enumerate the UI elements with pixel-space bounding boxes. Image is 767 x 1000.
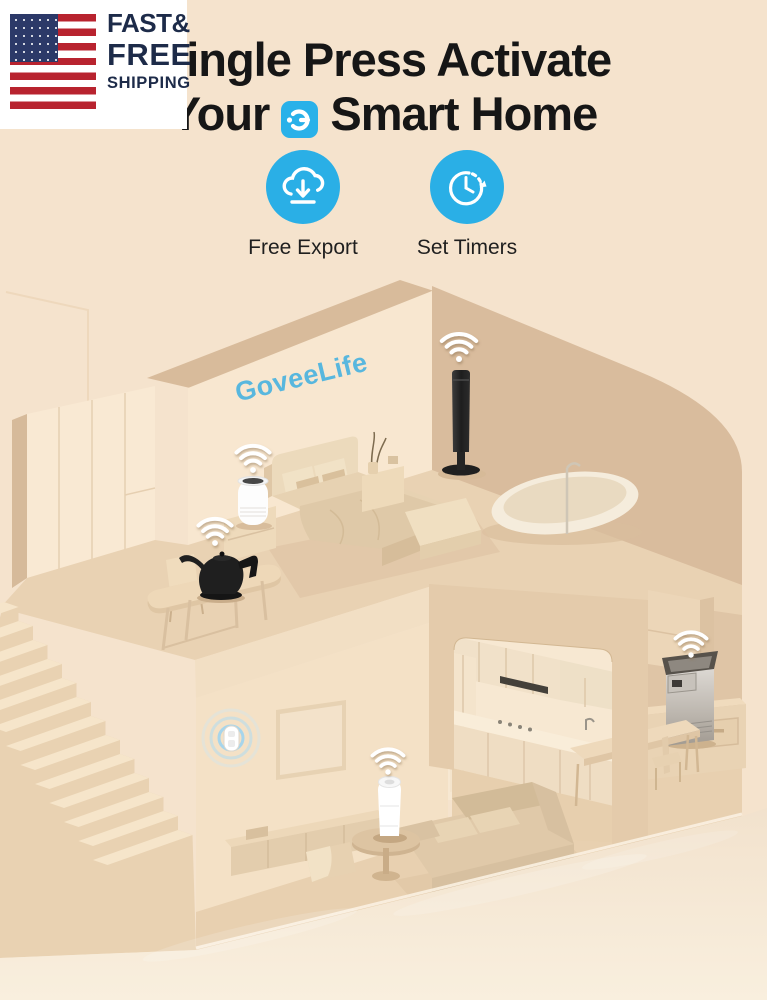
shipping-badge-text: FAST& FREE SHIPPING (107, 10, 192, 92)
badge-line3: SHIPPING (107, 75, 192, 92)
feature-label: Free Export (223, 236, 383, 260)
hero-stage: GoveeLife (0, 0, 767, 1000)
badge-line1: FAST& (107, 10, 192, 36)
smart-home-scene: GoveeLife (0, 0, 767, 1000)
headline-line2-suffix: Smart Home (330, 88, 597, 140)
set-timer-icon (430, 150, 504, 224)
product-hero-image: { "shipping_badge": { "flag_icon": "us-f… (0, 0, 767, 1000)
badge-line2: FREE (107, 39, 192, 70)
smart-button (203, 710, 259, 766)
feature-free-export: Free Export (223, 150, 383, 260)
feature-label: Set Timers (387, 236, 547, 260)
cloud-download-icon (266, 150, 340, 224)
govee-app-icon (281, 96, 318, 133)
shipping-badge: FAST& FREE SHIPPING (0, 0, 187, 129)
tv-frame (280, 705, 342, 775)
feature-set-timers: Set Timers (387, 150, 547, 260)
us-flag-icon (10, 14, 96, 109)
us-flag-canton (10, 14, 58, 62)
